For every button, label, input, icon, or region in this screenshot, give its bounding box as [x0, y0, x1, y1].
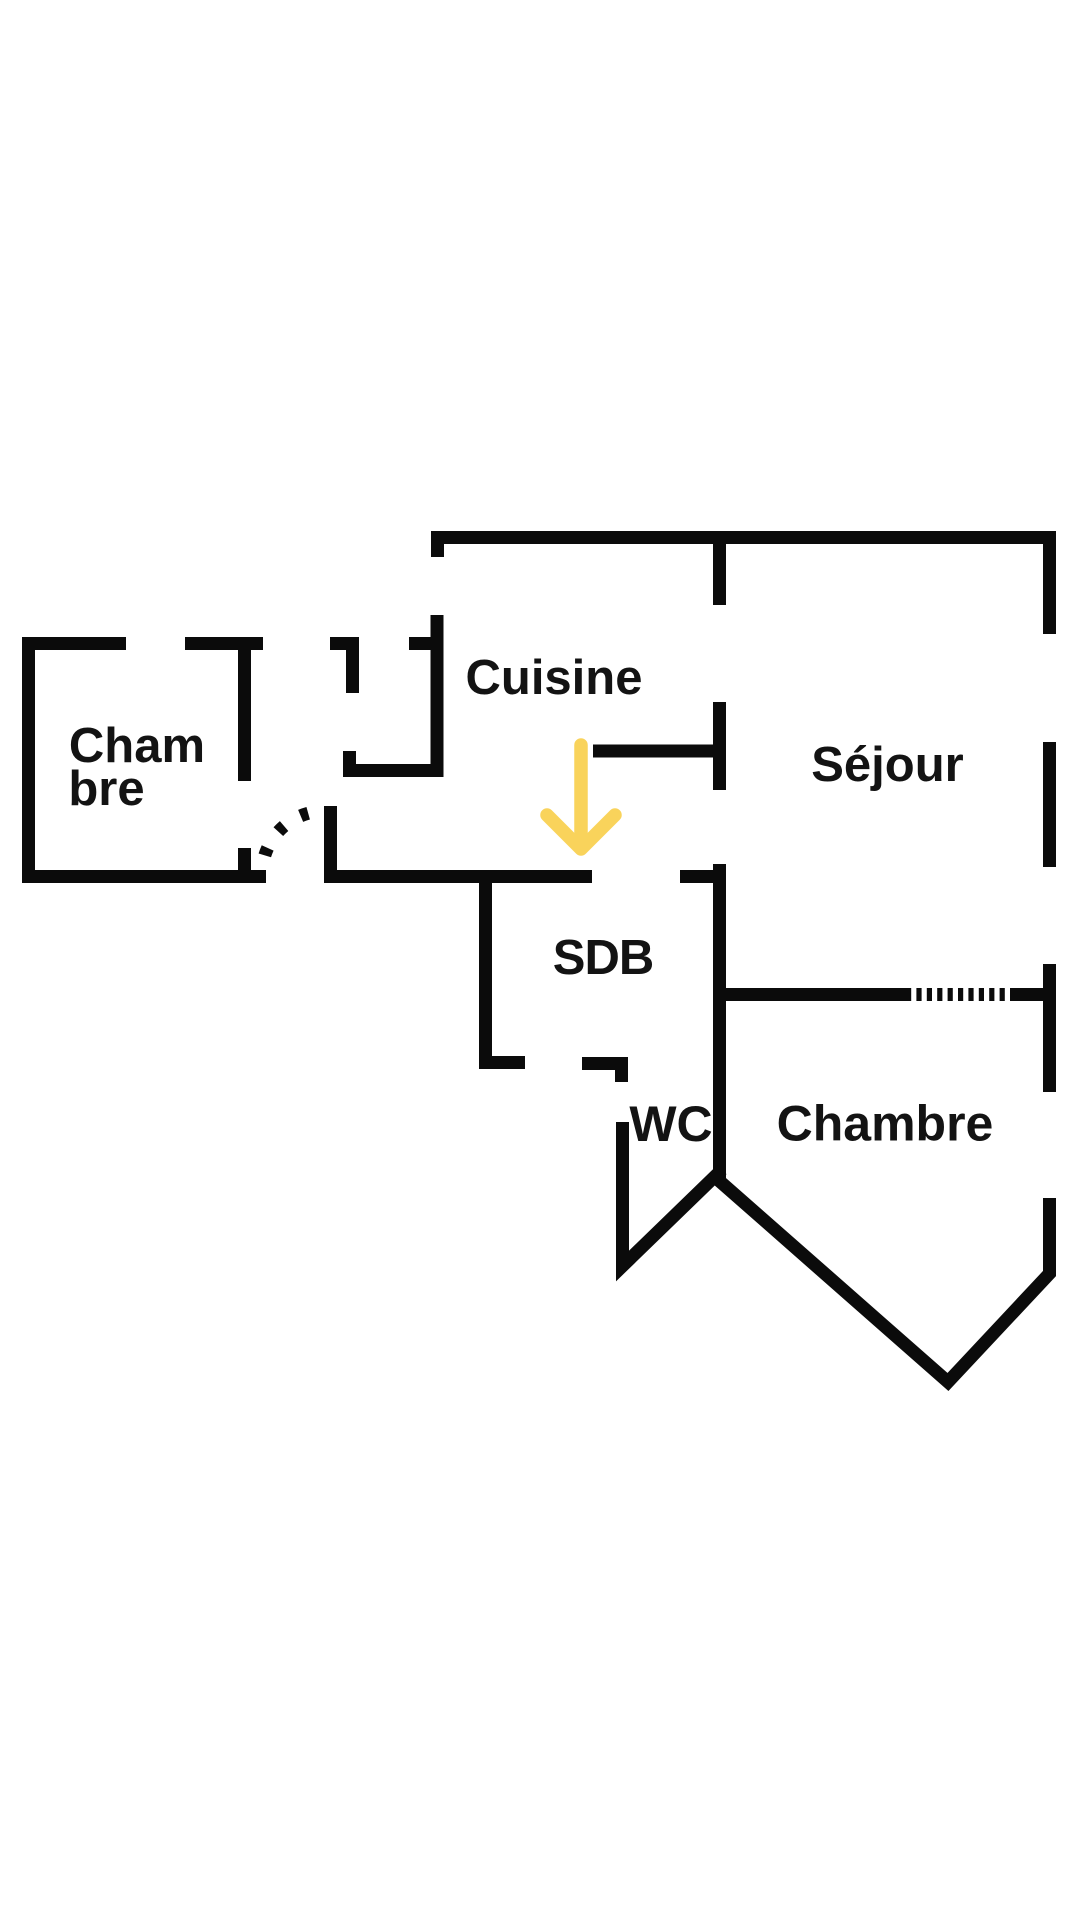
svg-text:bre: bre — [68, 762, 144, 816]
svg-text:Cuisine: Cuisine — [466, 651, 643, 705]
svg-text:SDB: SDB — [553, 931, 653, 985]
svg-text:Séjour: Séjour — [811, 738, 963, 792]
svg-text:WC: WC — [629, 1096, 712, 1152]
svg-text:Chambre: Chambre — [777, 1096, 994, 1152]
